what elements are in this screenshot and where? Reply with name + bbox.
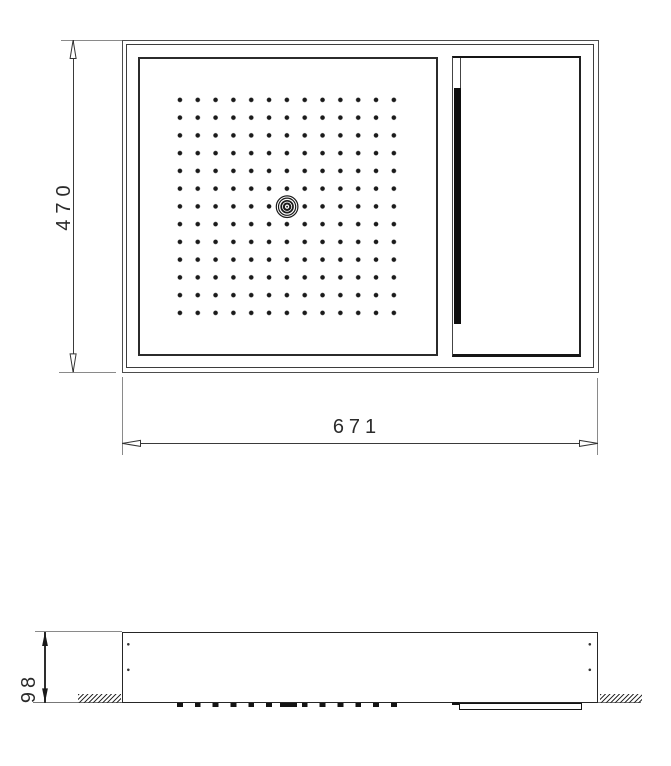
panel-slot-line: [460, 58, 461, 88]
dimension-label-depth: 98: [17, 658, 41, 718]
extension-line-470-bottom: [59, 372, 116, 373]
technical-drawing-canvas: 470 671 98: [0, 0, 671, 766]
dimension-label-width: 671: [312, 415, 402, 439]
extension-line-98-top: [35, 631, 122, 632]
nozzle-dot-grid: [171, 91, 403, 322]
dimension-line-98: [44, 632, 45, 703]
extension-line-470-top: [61, 40, 122, 41]
dimension-label-height: 470: [52, 165, 76, 245]
panel-slot-bar: [454, 88, 461, 324]
side-view-panel: [459, 703, 582, 710]
side-view-panel-notch: [452, 702, 460, 705]
side-view-housing: [122, 632, 599, 703]
dimension-line-671: [122, 443, 598, 444]
center-nozzle-tick: [280, 703, 298, 707]
ceiling-hatch-left: [78, 694, 121, 702]
side-panel-outline: [452, 56, 581, 358]
ceiling-hatch-right: [600, 694, 642, 703]
